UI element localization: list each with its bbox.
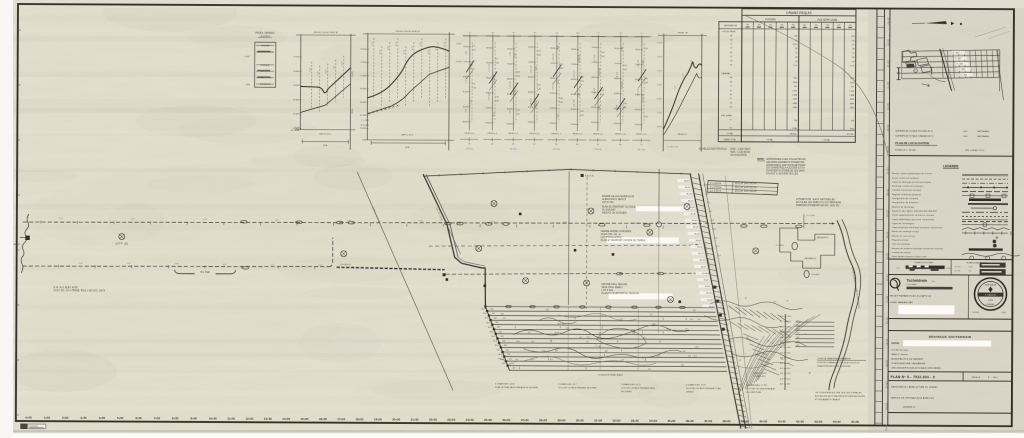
svg-text:46.2: 46.2 (780, 347, 783, 349)
svg-text:46.1: 46.1 (688, 356, 691, 358)
svg-text:40.0: 40.0 (796, 320, 799, 322)
svg-text:71.13: 71.13 (495, 96, 499, 98)
svg-text:423: 423 (506, 350, 509, 352)
svg-text:1+75: 1+75 (412, 46, 414, 50)
svg-text:ACTUELLES DE 20 METRES DES: ACTUELLES DE 20 METRES DES RAISONS SUIVI… (815, 395, 866, 398)
svg-text:B.V. TER: B.V. TER (200, 272, 210, 274)
svg-text:SUPERFICIE TOTALE DRAINEE (: SUPERFICIE TOTALE DRAINEE (R.T.) (895, 135, 934, 138)
svg-text:68.000: 68.000 (528, 77, 533, 79)
svg-text:Technidrain: Technidrain (907, 279, 928, 283)
svg-text:71.26: 71.26 (516, 76, 520, 78)
svg-text:H. 1 cm: H. 1 cm (955, 266, 961, 268)
svg-text:44.3: 44.3 (787, 373, 790, 375)
svg-text:64.000: 64.000 (657, 98, 662, 100)
svg-text:10+96: 10+96 (635, 223, 640, 225)
svg-text:"H": "H" (729, 107, 732, 109)
svg-text:716: 716 (851, 120, 854, 122)
svg-text:42.4: 42.4 (780, 378, 783, 380)
svg-text:71.33: 71.33 (537, 89, 541, 91)
svg-text:HECTARES: HECTARES (977, 130, 989, 133)
svg-text:Σ +0 EL 57.35: Σ +0 EL 57.35 (667, 146, 678, 148)
svg-text:Σ + 16.0 m: Σ + 16.0 m (710, 183, 721, 185)
svg-text:4+29: 4+29 (223, 264, 227, 266)
svg-text:"F": "F" (534, 33, 537, 35)
svg-text:27+50: 27+50 (521, 418, 529, 422)
svg-text:7+85: 7+85 (419, 221, 423, 223)
svg-text:Σ EL 54.00: Σ EL 54.00 (638, 149, 645, 151)
svg-text:Σ + 0.25 m: Σ + 0.25 m (710, 191, 721, 193)
svg-text:71.38: 71.38 (579, 55, 581, 59)
svg-text:49: 49 (783, 345, 785, 347)
svg-text:62.000: 62.000 (528, 107, 533, 109)
svg-text:49.7: 49.7 (717, 255, 721, 257)
svg-text:ELEVATION: ELEVATION (260, 83, 271, 86)
svg-text:68.000: 68.000 (507, 79, 512, 81)
svg-text:71.48: 71.48 (600, 90, 604, 92)
svg-text:68.000: 68.000 (591, 77, 596, 79)
svg-text:59.000: 59.000 (507, 124, 512, 126)
svg-text:71.49: 71.49 (623, 65, 627, 67)
svg-text:42.8: 42.8 (682, 351, 685, 353)
svg-text:32 51: 32 51 (793, 44, 798, 46)
svg-text:71.21: 71.21 (537, 85, 541, 87)
svg-text:59.000: 59.000 (550, 123, 555, 125)
svg-text:71.41: 71.41 (580, 77, 584, 79)
svg-text:42.4: 42.4 (690, 319, 693, 321)
svg-text:41+50: 41+50 (778, 419, 786, 423)
svg-text:4+20: 4+20 (637, 89, 639, 93)
svg-text:6+15: 6+15 (319, 265, 323, 267)
svg-text:PLAN DE LOCALISATION: PLAN DE LOCALISATION (895, 141, 929, 145)
svg-text:61.000: 61.000 (657, 112, 662, 114)
svg-text:1+24: 1+24 (675, 86, 677, 90)
svg-text:65.000: 65.000 (571, 94, 576, 96)
svg-text:40.0: 40.0 (780, 316, 783, 318)
svg-text:45+56: 45+56 (694, 233, 699, 235)
svg-text:"F": "F" (730, 98, 733, 100)
svg-text:417: 417 (509, 359, 512, 361)
svg-text:1 5 6: 1 5 6 (850, 65, 854, 67)
svg-text:71.27: 71.27 (537, 51, 541, 53)
svg-text:DES SOLS: DES SOLS (260, 71, 270, 73)
svg-text:3150: 3150 (793, 99, 797, 101)
svg-text:31+3: 31+3 (483, 313, 487, 315)
svg-text:Repere du madrier drainage: Repere du madrier drainage souterrain ex… (892, 247, 944, 250)
svg-text:98 245: 98 245 (790, 133, 797, 135)
svg-text:FEUILLE: FEUILLE (972, 377, 981, 379)
svg-text:BILL 40MM: BILL 40MM (721, 115, 731, 117)
svg-text:58.000: 58.000 (657, 126, 662, 128)
svg-text:PROFIL L-5: PROFIL L-5 (509, 133, 519, 135)
svg-text:P - 303: P - 303 (955, 58, 961, 60)
svg-text:71.59: 71.59 (643, 94, 645, 98)
svg-text:37+50: 37+50 (704, 419, 712, 423)
svg-text:0+50: 0+50 (25, 416, 32, 420)
svg-text:71.37: 71.37 (558, 80, 560, 84)
svg-text:LOT P - 181: LOT P - 181 (116, 244, 129, 246)
svg-text:LATERAL: LATERAL (722, 72, 732, 75)
svg-text:18+50: 18+50 (356, 417, 364, 421)
svg-text:RUE: RUE (323, 145, 328, 147)
svg-text:42.5: 42.5 (598, 332, 601, 334)
svg-text:1+75: 1+75 (444, 42, 446, 46)
svg-text:40.7: 40.7 (694, 356, 697, 358)
svg-text:LOT P 204: LOT P 204 (602, 201, 614, 204)
svg-text:"D": "D" (730, 90, 733, 92)
svg-text:3+00: 3+00 (616, 105, 618, 109)
svg-text:450: 450 (490, 308, 493, 310)
svg-text:5 608: 5 608 (792, 95, 797, 97)
svg-text:2+00: 2+00 (59, 218, 63, 220)
svg-text:47.2: 47.2 (787, 337, 790, 339)
svg-text:63.500: 63.500 (293, 114, 299, 116)
svg-text:Designation de diametre: Designation de diametre (892, 201, 919, 204)
svg-text:PROFIL TERRAIN: PROFIL TERRAIN (255, 32, 274, 35)
svg-text:13+50: 13+50 (264, 417, 272, 421)
svg-text:Σ DRAIN ELEV. 34 65: Σ DRAIN ELEV. 34 65 (495, 383, 516, 386)
svg-text:42.0: 42.0 (531, 341, 534, 343)
svg-text:42.0: 42.0 (620, 319, 623, 321)
svg-text:71.24: 71.24 (536, 101, 538, 105)
svg-text:90: 90 (795, 61, 797, 63)
svg-text:47.9: 47.9 (780, 352, 783, 354)
svg-text:47.5: 47.5 (566, 328, 569, 330)
svg-text:ECHELLE DES PROFILS:: ECHELLE DES PROFILS: (699, 148, 727, 151)
svg-text:1+25: 1+25 (683, 74, 685, 78)
svg-text:47.1: 47.1 (716, 246, 720, 248)
svg-text:"K": "K" (620, 33, 623, 35)
svg-text:71.17: 71.17 (515, 88, 517, 92)
svg-text:"B": "B" (730, 40, 733, 42)
svg-text:CLOU DU CH.TAUX PENDAGE TAUX: CLOU DU CH.TAUX PENDAGE TAUX (621, 387, 656, 390)
svg-text:49.3: 49.3 (780, 363, 783, 365)
svg-text:74.000: 74.000 (486, 47, 491, 49)
svg-text:"G": "G" (555, 33, 558, 35)
svg-text:Regard souterrain propose: Regard souterrain propose (892, 193, 922, 196)
svg-text:411: 411 (512, 368, 515, 370)
svg-text:PROFIL L-6: PROFIL L-6 (530, 133, 540, 135)
svg-text:AMONT: AMONT (14, 243, 22, 246)
svg-text:Niveau et cote terrain: Niveau et cote terrain (892, 234, 916, 237)
svg-text:47: 47 (787, 300, 789, 302)
svg-text:Ligne de drainage prevue p: Ligne de drainage prevue principale (892, 180, 932, 183)
svg-text:"D": "D" (491, 32, 494, 34)
svg-text:250: 250 (849, 25, 852, 27)
svg-text:42.7: 42.7 (666, 328, 669, 330)
svg-text:4126: 4126 (850, 82, 854, 84)
svg-text:46.0: 46.0 (695, 347, 698, 349)
svg-text:71.44: 71.44 (579, 93, 581, 97)
svg-text:1+75: 1+75 (420, 42, 422, 46)
svg-text:⊕: ⊕ (995, 236, 998, 240)
svg-text:27 8 45: 27 8 45 (847, 134, 855, 136)
svg-text:40.7: 40.7 (579, 337, 582, 339)
svg-text:61.500: 61.500 (360, 115, 366, 117)
svg-text:45.8: 45.8 (621, 360, 624, 362)
svg-text:1+75: 1+75 (388, 46, 390, 50)
svg-text:71.6: 71.6 (472, 83, 475, 85)
svg-text:49.7: 49.7 (709, 211, 713, 213)
svg-text:PROFIL L-2: PROFIL L-2 (678, 134, 688, 136)
svg-text:432: 432 (500, 336, 503, 338)
svg-text:40.1: 40.1 (698, 319, 701, 321)
svg-text:20 m: 20 m (969, 266, 973, 268)
svg-text:79.000: 79.000 (360, 49, 366, 51)
svg-text:Σ DRAIN ELEV. 45.75: Σ DRAIN ELEV. 45.75 (621, 383, 642, 386)
svg-text:74.000: 74.000 (571, 49, 576, 51)
svg-text:45+52: 45+52 (705, 286, 710, 288)
svg-text:4+70: 4+70 (552, 82, 554, 86)
svg-text:BATIMENTS: BATIMENTS (805, 257, 817, 260)
svg-text:SUPERFICIE TOTALE FUTURE (R: SUPERFICIE TOTALE FUTURE (R.T.) (895, 130, 933, 133)
svg-text:CONDUITE PRINCIPALE: CONDUITE PRINCIPALE (598, 374, 623, 377)
svg-text:ECHELLE 1 : 20 000: ECHELLE 1 : 20 000 (895, 150, 916, 152)
svg-text:MUNICIPALITE N. DE GASPARD: MUNICIPALITE N. DE GASPARD (891, 358, 924, 361)
svg-text:Σ DRAIN ELEV. 47.02: Σ DRAIN ELEV. 47.02 (686, 384, 707, 387)
svg-text:4+60: 4+60 (530, 65, 532, 69)
svg-text:100: 100 (803, 25, 806, 27)
svg-text:68.000: 68.000 (571, 79, 576, 81)
svg-text:32+6: 32+6 (485, 318, 489, 320)
svg-text:71.58: 71.58 (622, 47, 624, 51)
svg-text:14+50: 14+50 (282, 417, 290, 421)
svg-text:55: 55 (852, 40, 854, 42)
svg-text:NTUANT IL MODIFIE FINI LES: NTUANT IL MODIFIE FINI LES (766, 172, 798, 175)
svg-text:P - 362: P - 362 (959, 69, 965, 71)
svg-text:4999: 4999 (850, 103, 854, 105)
svg-text:31 DU PARC: 31 DU PARC (907, 283, 918, 286)
svg-text:CLOTURE: CLOTURE (806, 215, 816, 217)
svg-text:76.000: 76.000 (657, 42, 662, 44)
svg-text:8+22: 8+22 (491, 221, 495, 223)
svg-text:PROJET PREPARE POUR LE COM: PROJET PREPARE POUR LE COMPTE DE (890, 295, 932, 298)
svg-text:PROFIL COLLECTEUR "B": PROFIL COLLECTEUR "B" (396, 31, 421, 33)
svg-text:45+10: 45+10 (697, 247, 702, 249)
svg-text:150: 150 (826, 25, 829, 27)
svg-text:71.56: 71.56 (644, 78, 648, 80)
svg-text:DE LIGNE PLAN: DE LIGNE PLAN (746, 391, 762, 394)
svg-text:"E": "E" (513, 33, 516, 35)
svg-text:Σ EL 56.00: Σ EL 56.00 (510, 149, 517, 151)
svg-text:43.6: 43.6 (530, 359, 533, 361)
svg-text:71.36: 71.36 (536, 105, 538, 109)
svg-text:Systeme des lignes 100,200,: Systeme des lignes 100,200,300,340,360 (892, 210, 937, 213)
svg-text:46: 46 (739, 360, 741, 362)
svg-text:29+50: 29+50 (557, 418, 565, 422)
svg-text:36+50: 36+50 (686, 419, 694, 423)
svg-text:59.000: 59.000 (614, 123, 619, 125)
svg-text:48.5: 48.5 (787, 342, 790, 344)
svg-text:3150: 3150 (850, 99, 854, 101)
svg-text:PLAN ET RAPPORT CI/TATE DU T: PLAN ET RAPPORT CI/TATE DU TERRA (601, 239, 646, 242)
svg-text:BATIMENTS: BATIMENTS (817, 236, 829, 239)
svg-text:DE LIGNES: DE LIGNES (621, 391, 632, 393)
svg-text:1+75: 1+75 (404, 50, 406, 54)
svg-text:"C": "C" (730, 86, 733, 88)
svg-text:PROFIL COLLECTEUR "A": PROFIL COLLECTEUR "A" (314, 31, 339, 34)
svg-text:40+50: 40+50 (759, 419, 767, 423)
svg-text:429: 429 (502, 340, 505, 342)
svg-text:48.1: 48.1 (550, 359, 553, 361)
svg-text:71.39: 71.39 (537, 55, 541, 57)
svg-text:2+30: 2+30 (510, 52, 512, 56)
svg-text:ET DES AVANTS CANAUX: ET DES AVANTS CANAUX (815, 398, 841, 401)
svg-text:APPROPRIES A LES COLLECTEURS,: APPROPRIES A LES COLLECTEURS, (766, 158, 806, 161)
svg-text:45+50: 45+50 (851, 420, 859, 424)
svg-text:6+48: 6+48 (347, 220, 351, 222)
svg-text:26+50: 26+50 (502, 418, 510, 422)
svg-text:71.000: 71.000 (550, 63, 555, 65)
svg-text:DESSINE LS: DESSINE LS (903, 407, 916, 409)
svg-text:DESIGNATION: DESIGNATION (724, 24, 738, 27)
svg-text:125: 125 (814, 25, 817, 27)
svg-text:42.9: 42.9 (650, 314, 653, 316)
svg-text:RUE: RUE (405, 147, 410, 149)
svg-text:46.2: 46.2 (681, 365, 684, 367)
svg-text:RANG 1ᵉ Gauche: RANG 1ᵉ Gauche (891, 353, 909, 356)
svg-text:441: 441 (495, 322, 498, 324)
svg-text:5 608: 5 608 (849, 95, 854, 97)
svg-text:5+50: 5+50 (117, 416, 124, 420)
svg-text:3+30: 3+30 (488, 64, 490, 68)
svg-text:71.62: 71.62 (644, 116, 648, 118)
svg-text:"D": "D" (730, 48, 733, 50)
svg-text:22+50: 22+50 (429, 418, 437, 422)
svg-text:34+2: 34+2 (488, 327, 492, 329)
svg-text:71.12: 71.12 (472, 49, 476, 51)
svg-text:LIGNE B: LIGNE B (686, 391, 695, 393)
svg-text:9+59: 9+59 (563, 222, 567, 224)
svg-text:REF. QUEBEC 21-14: REF. QUEBEC 21-14 (965, 150, 985, 152)
svg-text:40: 40 (468, 143, 470, 145)
svg-text:23+50: 23+50 (447, 418, 455, 422)
svg-text:71.40: 71.40 (559, 102, 563, 104)
svg-text:59.000: 59.000 (463, 121, 468, 123)
svg-text:LOT NO 1er rang: LOT NO 1er rang (891, 350, 908, 352)
svg-text:71.23: 71.23 (515, 54, 517, 58)
svg-text:"H": "H" (576, 33, 579, 35)
svg-text:45+49: 45+49 (693, 227, 698, 229)
svg-text:V. 1 cm: V. 1 cm (955, 270, 961, 272)
svg-text:7154: 7154 (793, 78, 797, 80)
svg-text:SEPT 4 19 m: SEPT 4 19 m (401, 135, 413, 137)
svg-text:128: 128 (851, 36, 854, 38)
svg-text:72: 72 (640, 144, 642, 146)
svg-text:SEPT 4 19 m: SEPT 4 19 m (319, 134, 331, 136)
svg-text:45.5: 45.5 (780, 342, 783, 344)
svg-text:33+9: 33+9 (486, 322, 490, 324)
svg-text:35+50: 35+50 (668, 419, 676, 423)
svg-text:45+31: 45+31 (701, 266, 706, 268)
svg-text:71.57: 71.57 (599, 72, 601, 76)
svg-text:43.9: 43.9 (704, 185, 708, 187)
svg-text:DRAINAGE SOUTERRAIN: DRAINAGE SOUTERRAIN (929, 335, 971, 339)
svg-text:200: 200 (780, 24, 783, 26)
svg-text:68: 68 (619, 144, 621, 146)
svg-text:2+50: 2+50 (334, 66, 336, 70)
svg-text:71.9: 71.9 (471, 100, 473, 103)
svg-text:37+1: 37+1 (493, 340, 497, 342)
svg-text:43.6: 43.6 (516, 341, 519, 343)
svg-text:44.2: 44.2 (643, 337, 646, 339)
svg-text:19+50: 19+50 (374, 417, 382, 421)
svg-text:TERRAINS RIVERAINS ADJAC. AVAL: TERRAINS RIVERAINS ADJAC. AVAL DU (796, 204, 840, 207)
svg-text:71.67: 71.67 (623, 107, 627, 109)
svg-text:62.000: 62.000 (550, 108, 555, 110)
svg-text:1+75: 1+75 (372, 42, 374, 46)
svg-text:"G": "G" (730, 61, 733, 63)
svg-text:PROFIL "M": PROFIL "M" (678, 32, 689, 34)
svg-text:71.68: 71.68 (644, 82, 648, 84)
svg-text:6+50: 6+50 (135, 416, 142, 420)
svg-text:71.000: 71.000 (463, 61, 468, 63)
svg-text:41.3: 41.3 (796, 325, 799, 327)
svg-text:30+0: 30+0 (481, 309, 485, 311)
svg-text:2+50: 2+50 (342, 62, 344, 66)
svg-text:74.375: 74.375 (352, 72, 354, 77)
svg-text:38+4: 38+4 (495, 345, 499, 347)
svg-text:74.000: 74.000 (507, 49, 512, 51)
svg-text:43.1: 43.1 (780, 384, 783, 386)
svg-text:DRAINS REQUIS: DRAINS REQUIS (786, 11, 811, 15)
svg-text:125: 125 (757, 24, 760, 26)
svg-text:2+50: 2+50 (310, 68, 312, 72)
svg-text:ECHELLE DU PLAN: ECHELLE DU PLAN (915, 261, 934, 264)
svg-text:44.2: 44.2 (557, 332, 560, 334)
svg-text:10+50: 10+50 (209, 417, 217, 421)
svg-text:71.30: 71.30 (536, 67, 538, 71)
svg-text:CHANTIER SYSTEME DE LES DRAI-: CHANTIER SYSTEME DE LES DRAI- (766, 169, 805, 172)
svg-text:"E": "E" (730, 52, 733, 54)
svg-text:CLOU DE CH.TAUX PENDAGE DE: CLOU DE CH.TAUX PENDAGE DE LIGNE (558, 386, 597, 389)
svg-text:4126: 4126 (793, 82, 797, 84)
svg-text:2+43: 2+43 (127, 263, 131, 265)
svg-text:1+00: 1+00 (466, 51, 468, 55)
svg-text:71.55: 71.55 (623, 103, 627, 105)
svg-text:P - 363: P - 363 (961, 74, 967, 76)
svg-text:52: 52 (533, 144, 535, 146)
svg-text:45+03: 45+03 (696, 240, 701, 242)
svg-text:44: 44 (491, 143, 493, 145)
svg-text:317: 317 (851, 86, 854, 88)
svg-text:4+80: 4+80 (573, 99, 575, 103)
svg-text:ON CONSIDERE AUCUNE QUE LE: ON CONSIDERE AUCUNE QUE LES SURFACES (815, 391, 862, 394)
svg-text:42: 42 (772, 343, 774, 345)
svg-text:71.35: 71.35 (580, 111, 584, 113)
svg-text:Ø 6 LAT m³/s /OUVR: Ø 6 LAT m³/s /OUVR (735, 182, 757, 185)
svg-text:62.000: 62.000 (571, 109, 576, 111)
svg-text:45+42: 45+42 (692, 220, 697, 222)
svg-text:11+50: 11+50 (227, 417, 235, 421)
svg-text:16+50: 16+50 (319, 417, 327, 421)
svg-text:71.53: 71.53 (580, 81, 584, 83)
svg-text:+ 800: + 800 (245, 84, 250, 86)
svg-text:PROFIL L-10: PROFIL L-10 (615, 134, 626, 136)
svg-text:71.52: 71.52 (622, 81, 624, 85)
svg-text:45.5: 45.5 (796, 341, 799, 343)
svg-text:45.7: 45.7 (586, 341, 589, 343)
svg-text:25+50: 25+50 (484, 418, 492, 422)
svg-text:4+40: 4+40 (488, 93, 490, 97)
svg-text:3+20: 3+20 (465, 109, 467, 113)
svg-text:65.000: 65.000 (507, 94, 512, 96)
svg-text:1+75: 1+75 (396, 42, 398, 46)
svg-text:62.000: 62.000 (591, 107, 596, 109)
svg-text:54: 54 (852, 57, 854, 59)
svg-text:68.000: 68.000 (550, 78, 555, 80)
svg-text:62.000: 62.000 (463, 106, 468, 108)
svg-text:45+07: 45+07 (685, 187, 690, 189)
